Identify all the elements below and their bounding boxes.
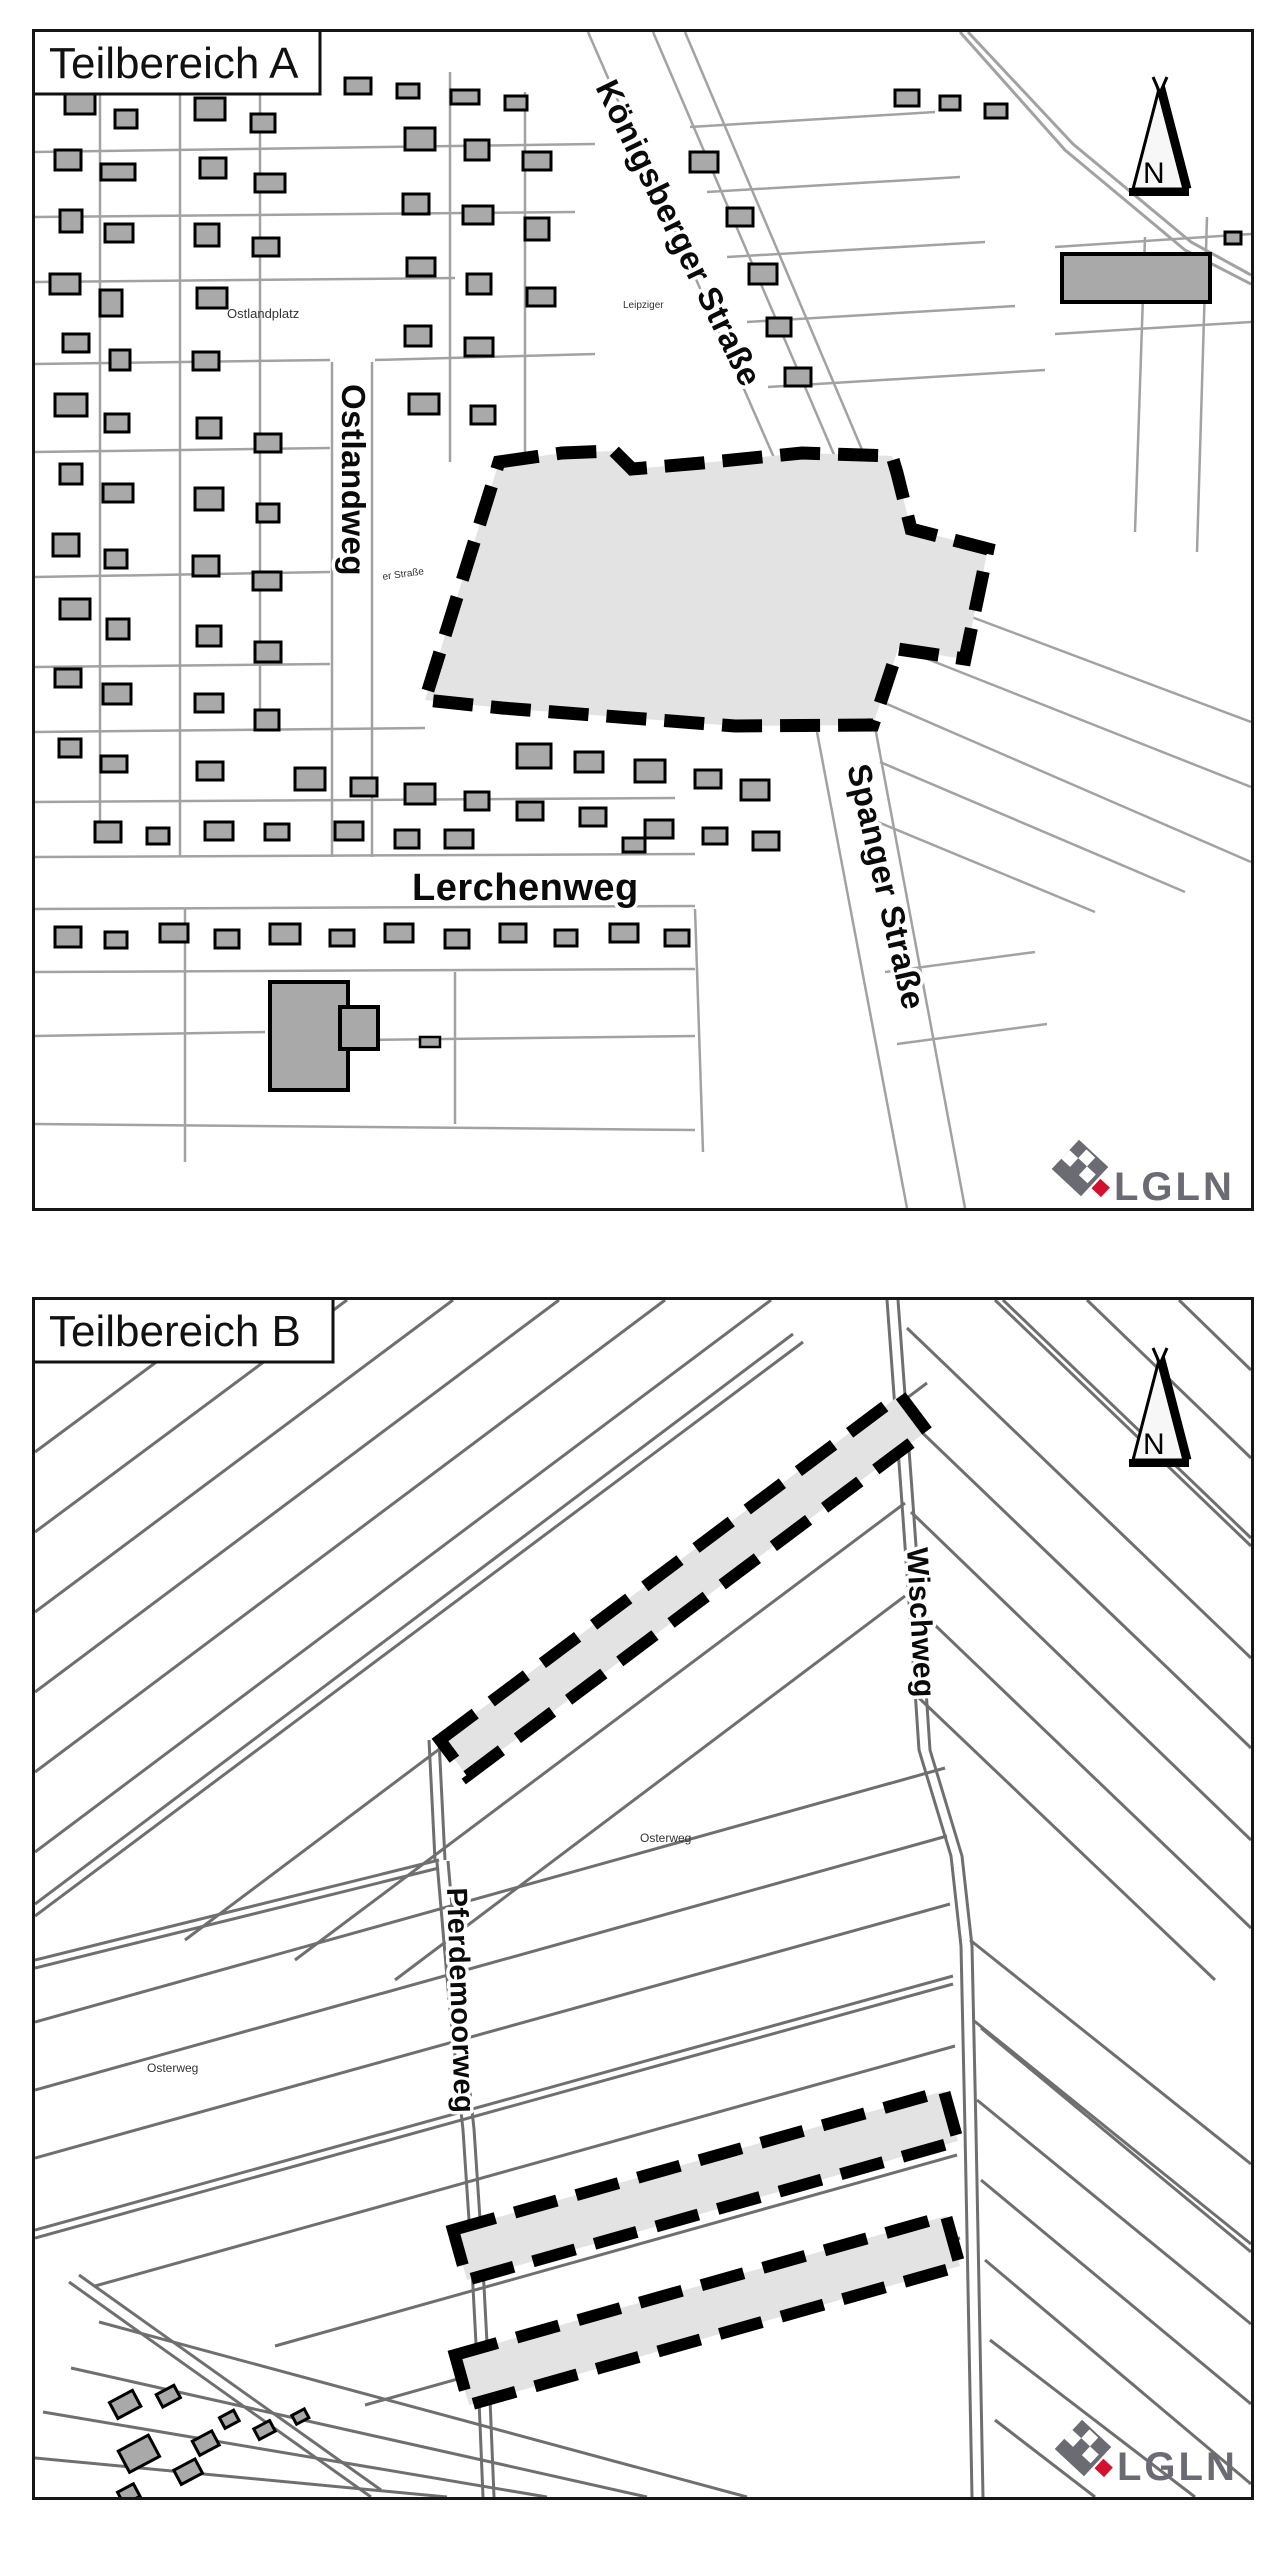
building xyxy=(101,164,135,180)
field-line xyxy=(295,1503,905,1960)
plan-strip-boundary-1 xyxy=(440,1395,927,1776)
building xyxy=(193,352,219,370)
large-building xyxy=(1062,254,1210,302)
building xyxy=(395,830,419,848)
building xyxy=(500,924,526,942)
panel-title-a: Teilbereich A xyxy=(49,39,299,88)
parcel-line xyxy=(35,144,595,152)
building xyxy=(193,556,219,576)
field-line xyxy=(907,1328,1251,1658)
building xyxy=(517,802,543,820)
building xyxy=(517,744,551,768)
field-line xyxy=(981,2028,1251,2252)
street-label-spanger-strasse: Spanger Straße xyxy=(840,760,932,1013)
street-label-ostlandweg: Ostlandweg xyxy=(335,384,372,576)
parcel-line xyxy=(1055,234,1251,247)
parcel-line xyxy=(35,728,425,732)
building xyxy=(253,572,281,590)
parcel-line xyxy=(897,1024,1047,1044)
field-line xyxy=(35,1836,947,2090)
building xyxy=(103,484,133,502)
building xyxy=(465,338,493,356)
street-label-koenigsberger-strasse: Königsberger Straße xyxy=(589,74,770,392)
building xyxy=(940,96,960,110)
parcel-line xyxy=(35,798,675,802)
map-canvas-b: Wischweg Pferdemoorweg Osterweg Osterweg… xyxy=(35,1300,1251,2497)
building xyxy=(265,824,289,840)
building xyxy=(525,218,549,240)
building xyxy=(195,694,223,712)
building xyxy=(345,78,371,94)
building xyxy=(55,394,87,416)
field-line xyxy=(35,1984,953,2238)
building xyxy=(105,224,133,242)
building xyxy=(255,642,281,662)
building xyxy=(195,488,223,510)
field-line xyxy=(919,1698,1215,1980)
street-label-pferdemoorweg: Pferdemoorweg xyxy=(440,1887,480,2114)
field-line xyxy=(35,1768,945,2022)
building xyxy=(753,832,779,850)
parcel-line xyxy=(35,448,330,452)
building xyxy=(197,418,221,438)
building xyxy=(195,224,219,246)
road-wischweg-edge xyxy=(887,1300,972,2497)
lgln-logo-b: LGLN xyxy=(1055,2420,1238,2489)
building xyxy=(785,368,811,386)
building xyxy=(105,550,127,568)
north-arrow-n-label: N xyxy=(1143,1428,1165,1461)
parcel-line xyxy=(35,1124,695,1130)
building xyxy=(174,2459,203,2484)
parcel-line xyxy=(880,762,1185,892)
building xyxy=(575,752,603,772)
building xyxy=(703,828,727,844)
small-label-er-strasse: er Straße xyxy=(382,566,425,583)
map-panel-b: Wischweg Pferdemoorweg Osterweg Osterweg… xyxy=(32,1297,1254,2500)
parcel-line xyxy=(35,572,330,577)
lgln-logo-text-b: LGLN xyxy=(1117,2445,1238,2489)
building xyxy=(465,140,489,160)
building xyxy=(251,114,275,132)
building xyxy=(109,2390,140,2418)
building xyxy=(623,838,645,852)
building xyxy=(103,684,131,704)
parcel-line xyxy=(35,664,330,667)
building xyxy=(690,152,718,172)
field-line xyxy=(35,1904,950,2158)
building xyxy=(420,1037,440,1047)
building xyxy=(255,434,281,452)
parcel-line xyxy=(887,704,1251,862)
building xyxy=(219,2410,239,2428)
field-line xyxy=(429,1740,435,1860)
building xyxy=(330,930,354,946)
parcel-line xyxy=(35,969,695,972)
building xyxy=(197,626,221,646)
building xyxy=(197,762,223,780)
building xyxy=(409,394,439,414)
field-line xyxy=(35,1860,439,1960)
building xyxy=(635,760,665,782)
street-label-lerchenweg: Lerchenweg xyxy=(412,867,639,909)
building xyxy=(192,2431,219,2455)
parcel-line xyxy=(690,112,935,127)
building xyxy=(60,599,90,619)
north-arrow-a: N xyxy=(1129,77,1189,192)
building xyxy=(254,2420,276,2439)
building xyxy=(665,930,689,946)
building xyxy=(527,288,555,306)
building xyxy=(749,264,777,284)
parcel-line xyxy=(727,242,985,257)
building xyxy=(105,414,129,432)
small-label-osterweg-2: Osterweg xyxy=(147,2061,198,2075)
building xyxy=(147,828,169,844)
field-line xyxy=(35,2458,447,2497)
building xyxy=(403,194,429,214)
building xyxy=(385,924,413,942)
building xyxy=(63,334,89,352)
field-line xyxy=(35,1976,953,2230)
building xyxy=(257,504,279,522)
parcel-line xyxy=(685,32,863,452)
building xyxy=(451,90,479,104)
small-label-leipziger: Leipziger xyxy=(623,300,664,311)
field-line xyxy=(1179,1300,1251,1370)
building xyxy=(580,808,606,826)
building xyxy=(101,756,127,772)
building xyxy=(55,150,81,170)
building xyxy=(118,2484,140,2497)
road-line xyxy=(968,32,1251,275)
large-building xyxy=(340,1007,378,1049)
building xyxy=(505,96,527,110)
panel-title-b: Teilbereich B xyxy=(49,1307,301,1356)
building xyxy=(335,822,363,840)
building xyxy=(255,174,285,192)
building xyxy=(255,710,279,730)
building xyxy=(50,274,80,294)
building xyxy=(95,822,121,842)
building xyxy=(215,930,239,948)
panel-title-box-a: Teilbereich A xyxy=(35,32,320,94)
building xyxy=(555,930,577,946)
parcel-line xyxy=(695,909,703,1152)
building xyxy=(445,930,469,948)
buildings-b xyxy=(79,2323,309,2497)
building xyxy=(110,350,130,370)
building xyxy=(160,924,188,942)
building xyxy=(407,258,435,276)
building xyxy=(610,924,638,942)
field-line xyxy=(35,1868,439,1968)
building xyxy=(895,90,919,106)
building xyxy=(59,739,81,757)
parcel-line xyxy=(35,1032,265,1036)
building xyxy=(253,238,279,256)
plan-area-boundary-a xyxy=(425,451,988,726)
parcel-line xyxy=(365,1036,695,1040)
parcel-line xyxy=(35,278,455,282)
building xyxy=(195,98,225,120)
building xyxy=(741,780,769,800)
building xyxy=(60,464,82,484)
field-line xyxy=(911,1512,1251,1840)
parcel-line xyxy=(707,177,960,192)
building xyxy=(523,152,551,170)
building xyxy=(200,158,226,178)
map-panel-a: Königsberger Straße Ostlandweg Lerchenwe… xyxy=(32,29,1254,1211)
small-label-ostlandplatz: Ostlandplatz xyxy=(227,306,299,321)
building xyxy=(467,274,491,294)
north-arrow-b: N xyxy=(1129,1348,1189,1463)
parcel-line xyxy=(897,647,1251,787)
street-label-wischweg: Wischweg xyxy=(900,1547,941,1699)
building xyxy=(115,110,137,128)
large-building xyxy=(270,982,348,1090)
building xyxy=(1225,232,1241,244)
building xyxy=(767,318,791,336)
field-line xyxy=(35,1342,803,1916)
lgln-logo-a: LGLN xyxy=(1052,1140,1235,1208)
map-canvas-a: Königsberger Straße Ostlandweg Lerchenwe… xyxy=(35,32,1251,1208)
north-arrow-n-label: N xyxy=(1143,157,1165,190)
building xyxy=(53,534,79,556)
parcel-line xyxy=(1055,322,1251,334)
building xyxy=(471,406,495,424)
field-line xyxy=(909,1420,1251,1748)
building xyxy=(270,924,300,944)
building xyxy=(445,830,473,848)
panel-title-box-b: Teilbereich B xyxy=(35,1300,333,1362)
parcel-line xyxy=(35,360,330,364)
building xyxy=(645,820,673,838)
building xyxy=(405,128,435,150)
lgln-logo-text-a: LGLN xyxy=(1114,1165,1235,1208)
building xyxy=(55,669,81,687)
building xyxy=(295,768,325,790)
building xyxy=(60,210,82,232)
building xyxy=(405,784,435,804)
building xyxy=(197,288,227,308)
field-line xyxy=(439,1740,445,1860)
building xyxy=(695,770,721,788)
building xyxy=(351,778,377,796)
building xyxy=(105,932,127,948)
building xyxy=(405,326,431,346)
building xyxy=(985,104,1007,118)
building xyxy=(107,619,129,639)
building xyxy=(55,927,81,947)
building xyxy=(397,84,419,98)
building xyxy=(463,206,493,224)
building xyxy=(465,792,489,810)
building xyxy=(100,290,122,316)
building xyxy=(727,208,753,226)
parcel-line xyxy=(35,854,695,857)
small-label-osterweg-1: Osterweg xyxy=(640,1831,691,1845)
building xyxy=(205,822,233,840)
